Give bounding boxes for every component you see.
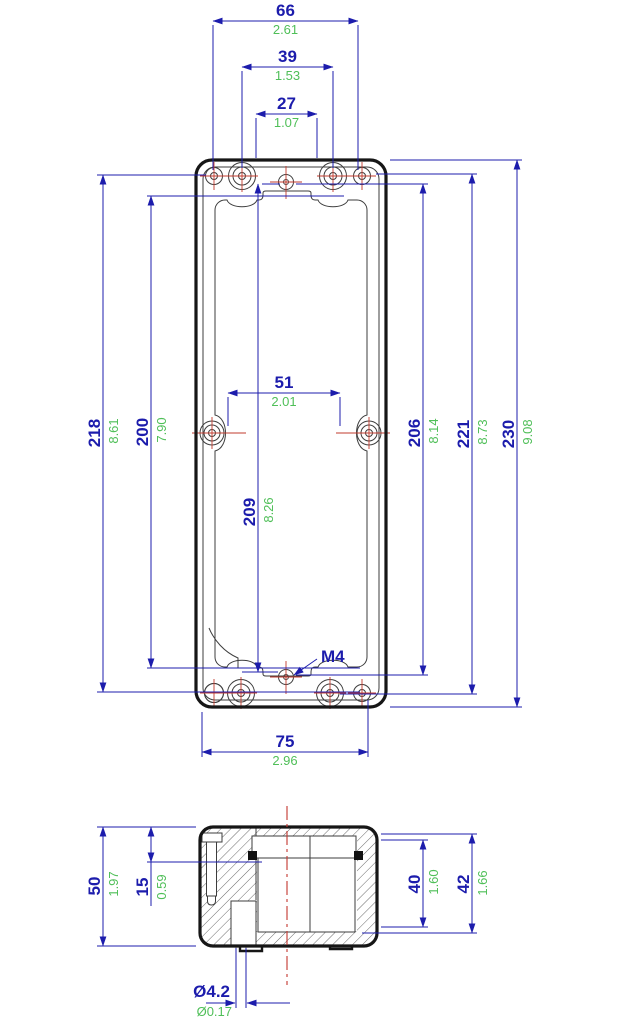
- dim-66-in: 2.61: [273, 22, 298, 37]
- dim-50-in: 1.97: [106, 871, 121, 896]
- enclosure-technical-drawing: 66 2.61 39 1.53 27 1.07 51 2.01: [0, 0, 618, 1024]
- dim-hole-diameter-in: Ø0.17: [197, 1004, 232, 1019]
- dim-40-in: 1.60: [426, 869, 441, 894]
- dim-51-mm: 51: [275, 373, 294, 392]
- dim-51-in: 2.01: [271, 394, 296, 409]
- dim-39-in: 1.53: [275, 68, 300, 83]
- dim-221-in: 8.73: [475, 419, 490, 444]
- dim-75-in: 2.96: [272, 753, 297, 768]
- seal-right: [354, 851, 363, 860]
- main-cavity: [258, 858, 355, 932]
- dim-218-mm: 218: [85, 419, 104, 447]
- dim-230-in: 9.08: [520, 419, 535, 444]
- seal-left: [248, 851, 257, 860]
- dim-27-mm: 27: [277, 94, 296, 113]
- dim-40-mm: 40: [405, 875, 424, 894]
- dim-209-mm: 209: [240, 498, 259, 526]
- dim-42-mm: 42: [454, 875, 473, 894]
- dim-200-mm: 200: [133, 418, 152, 446]
- dim-50-mm: 50: [85, 877, 104, 896]
- dim-15-mm: 15: [133, 878, 152, 897]
- thread-callout-text: M4: [321, 647, 345, 666]
- dim-75-mm: 75: [276, 732, 295, 751]
- screw-boss-channel: [231, 901, 256, 945]
- top-compartment: [252, 836, 356, 858]
- dim-218-in: 8.61: [106, 418, 121, 443]
- dim-221-mm: 221: [454, 420, 473, 448]
- dim-39-mm: 39: [278, 47, 297, 66]
- dim-42-in: 1.66: [475, 870, 490, 895]
- dim-206-in: 8.14: [426, 418, 441, 443]
- dim-hole-diameter-mm: Ø4.2: [193, 982, 230, 1001]
- dim-200-in: 7.90: [154, 417, 169, 442]
- dim-209-in: 8.26: [261, 497, 276, 522]
- dim-27-in: 1.07: [274, 115, 299, 130]
- dim-15-in: 0.59: [154, 874, 169, 899]
- dim-66-mm: 66: [276, 1, 295, 20]
- drawing-page: 66 2.61 39 1.53 27 1.07 51 2.01: [0, 0, 618, 1024]
- dim-206-mm: 206: [405, 419, 424, 447]
- dim-230-mm: 230: [499, 420, 518, 448]
